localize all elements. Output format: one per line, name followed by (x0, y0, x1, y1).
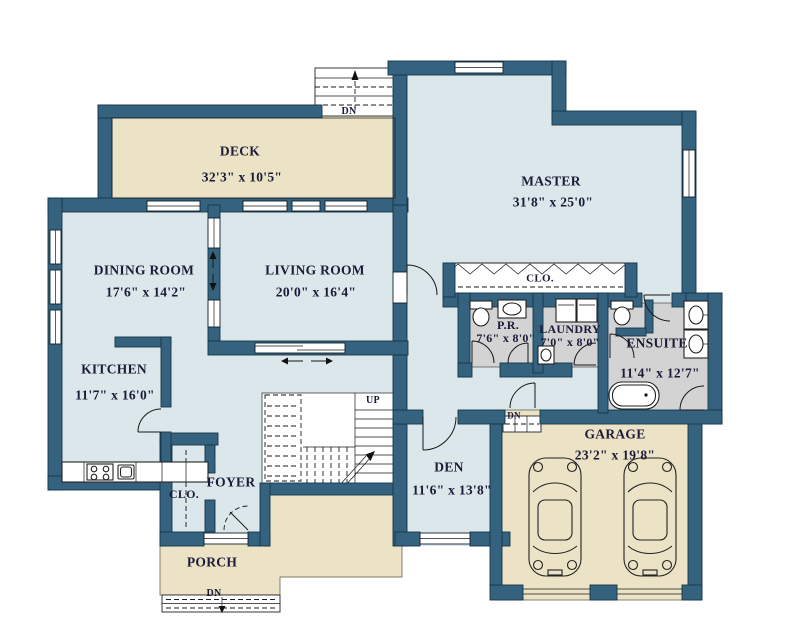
foyer-label: FOYER (207, 475, 256, 489)
den-label: DEN (434, 460, 463, 474)
powder-room-label: P.R. (497, 319, 519, 331)
dining-room-dims: 17'6" x 14'2" (106, 285, 186, 299)
garage-stairs-down-label: DN (507, 412, 521, 421)
deck-stairs-down-label: DN (341, 107, 356, 117)
porch-stairs-down-label: DN (206, 589, 221, 599)
dining-room-label: DINING ROOM (94, 263, 194, 277)
master-dims: 31'8" x 25'0" (513, 195, 593, 209)
floor-plan-canvas: DECK 32'3" x 10'5" MASTER 31'8" x 25'0" … (0, 0, 800, 642)
living-room-label: LIVING ROOM (265, 263, 365, 277)
bathtub-symbol (609, 382, 659, 409)
powder-room-dims: 7'6" x 8'0" (476, 332, 535, 344)
stairs-up-label: UP (366, 396, 380, 406)
foyer-closet-label: CLO. (169, 488, 199, 500)
deck-dims: 32'3" x 10'5" (202, 170, 282, 184)
main-staircase (262, 393, 395, 487)
living-room-dims: 20'0" x 16'4" (276, 285, 356, 299)
kitchen-label: KITCHEN (81, 362, 147, 376)
garage-label: GARAGE (584, 427, 645, 441)
deck-label: DECK (220, 144, 260, 158)
ensuite-label: ENSUITE (626, 336, 687, 350)
master-label: MASTER (521, 174, 581, 188)
garage-dims: 23'2" x 19'8" (575, 448, 655, 462)
laundry-label: LAUNDRY (539, 323, 601, 335)
kitchen-counter (62, 462, 208, 482)
ensuite-dims: 11'4" x 12'7" (620, 366, 700, 380)
laundry-dims: 7'0" x 8'0" (540, 336, 599, 348)
den-dims: 11'6" x 13'8" (412, 483, 492, 497)
porch-label: PORCH (187, 555, 237, 569)
master-closet-label: CLO. (526, 274, 554, 285)
kitchen-dims: 11'7" x 16'0" (75, 388, 155, 402)
floor-plan-drawing (0, 0, 800, 642)
